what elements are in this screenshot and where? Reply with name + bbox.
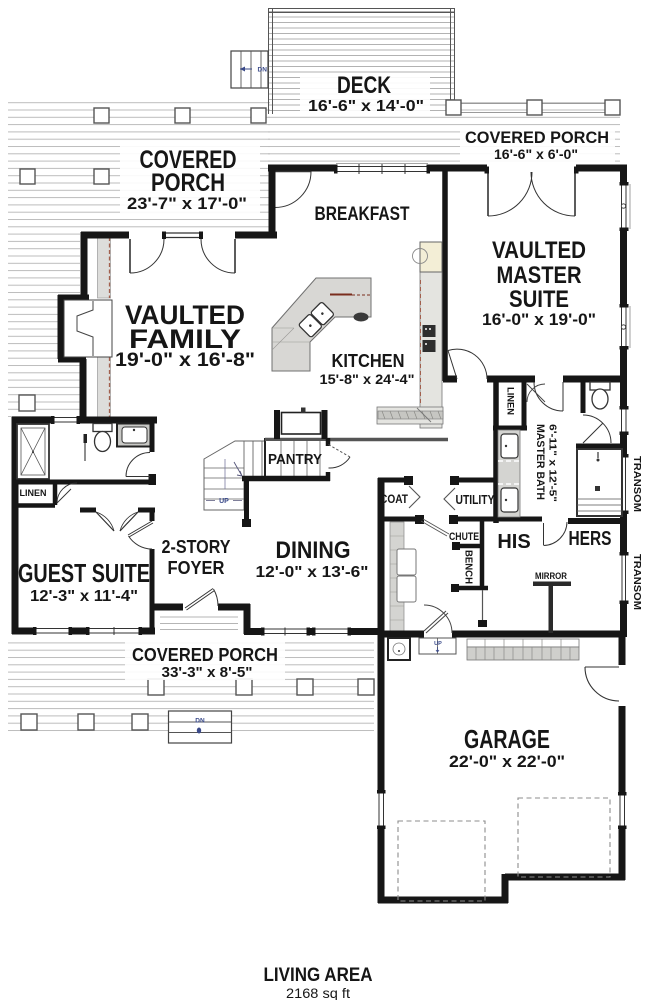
svg-text:LINEN: LINEN <box>20 488 47 499</box>
svg-text:DN: DN <box>258 67 268 74</box>
svg-text:TRANSOM: TRANSOM <box>631 554 642 610</box>
svg-text:16'-6" x 14'-0": 16'-6" x 14'-0" <box>308 98 424 115</box>
svg-text:PANTRY: PANTRY <box>268 451 322 468</box>
svg-text:GARAGE: GARAGE <box>464 724 550 754</box>
svg-text:33'-3" x 8'-5": 33'-3" x 8'-5" <box>162 664 253 681</box>
svg-text:23'-7" x 17'-0": 23'-7" x 17'-0" <box>127 194 247 213</box>
svg-text:LIVING AREA: LIVING AREA <box>264 965 373 986</box>
svg-text:12'-0" x 13'-6": 12'-0" x 13'-6" <box>256 564 369 581</box>
svg-text:UTILITY: UTILITY <box>456 493 496 507</box>
svg-text:MASTER: MASTER <box>497 262 582 289</box>
svg-text:COAT: COAT <box>380 492 409 506</box>
svg-text:15'-8" x 24'-4": 15'-8" x 24'-4" <box>320 371 415 387</box>
svg-text:MIRROR: MIRROR <box>535 571 567 581</box>
svg-text:22'-0" x 22'-0": 22'-0" x 22'-0" <box>449 752 565 771</box>
svg-text:PORCH: PORCH <box>151 169 225 197</box>
svg-text:COVERED PORCH: COVERED PORCH <box>132 645 278 665</box>
svg-text:HERS: HERS <box>569 528 612 550</box>
svg-text:DINING: DINING <box>276 537 351 564</box>
svg-text:UP: UP <box>219 498 229 505</box>
svg-text:BENCH: BENCH <box>463 550 474 584</box>
svg-text:16'-0" x 19'-0": 16'-0" x 19'-0" <box>482 310 596 329</box>
svg-text:16'-6" x 6'-0": 16'-6" x 6'-0" <box>494 147 578 162</box>
svg-text:2168 sq ft: 2168 sq ft <box>286 986 350 1000</box>
svg-text:GUEST SUITE: GUEST SUITE <box>18 558 150 588</box>
svg-text:HIS: HIS <box>497 531 530 553</box>
svg-text:DN: DN <box>195 718 205 725</box>
svg-text:DECK: DECK <box>337 72 392 99</box>
svg-text:UP: UP <box>434 641 442 647</box>
svg-text:2-STORY: 2-STORY <box>162 537 231 557</box>
svg-text:CHUTE: CHUTE <box>449 531 479 543</box>
svg-text:KITCHEN: KITCHEN <box>332 351 405 371</box>
svg-text:FOYER: FOYER <box>168 558 225 578</box>
svg-text:6'-11" x 12'-5": 6'-11" x 12'-5" <box>547 424 559 502</box>
svg-text:12'-3" x 11'-4": 12'-3" x 11'-4" <box>30 588 138 605</box>
svg-text:19'-0" x 16'-8": 19'-0" x 16'-8" <box>115 350 255 371</box>
svg-text:COVERED PORCH: COVERED PORCH <box>465 128 609 147</box>
svg-text:SUITE: SUITE <box>509 286 569 313</box>
svg-text:MASTER BATH: MASTER BATH <box>534 424 546 500</box>
svg-text:BREAKFAST: BREAKFAST <box>315 204 410 225</box>
svg-text:LINEN: LINEN <box>505 387 516 415</box>
svg-text:TRANSOM: TRANSOM <box>631 456 642 512</box>
svg-text:VAULTED: VAULTED <box>492 237 586 264</box>
